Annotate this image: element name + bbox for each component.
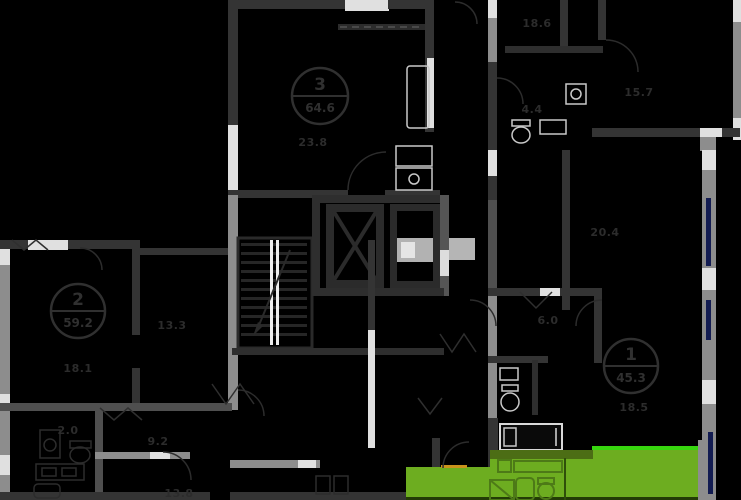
cabinet-icon	[316, 476, 348, 494]
room-area-label: 13.3	[157, 319, 186, 332]
bed-icon	[500, 424, 562, 450]
sink-icon	[36, 464, 84, 480]
apartment-total-area: 59.2	[63, 316, 93, 330]
highlighted-apartment[interactable]	[406, 446, 698, 500]
room-area-label: 18.1	[63, 362, 92, 375]
apartment-number: 3	[314, 75, 326, 95]
room-area-label: 18.5	[619, 401, 648, 414]
apartment-3-badge[interactable]: 364.6	[292, 68, 348, 124]
toilet-icon	[70, 441, 91, 463]
stairs-icon	[228, 195, 312, 410]
floor-plan-viewer: 23.818.615.74.420.46.018.513.318.12.09.2…	[0, 0, 741, 500]
room-area-label: 13.8	[164, 487, 193, 500]
selection-accent-line	[592, 446, 698, 450]
room-area-label: 2.0	[58, 424, 79, 437]
apartment-number: 1	[625, 345, 637, 365]
room-area-label: 18.6	[522, 17, 551, 30]
bathroom-fixtures-lower	[500, 368, 519, 411]
room-area-label: 9.2	[148, 435, 169, 448]
apartment-total-area: 64.6	[305, 101, 335, 115]
apartment-1-badge[interactable]: 145.3	[604, 339, 658, 393]
apartment-number: 2	[72, 290, 84, 310]
room-area-label: 4.4	[522, 103, 543, 116]
room-area-label: 20.4	[590, 226, 619, 239]
floor-plan-canvas: 23.818.615.74.420.46.018.513.318.12.09.2…	[0, 0, 741, 500]
room-area-label: 15.7	[624, 86, 653, 99]
apartment-total-area: 45.3	[616, 371, 646, 385]
walls-apartment-2	[0, 240, 232, 411]
room-area-label: 6.0	[538, 314, 559, 327]
apartment-2-badge[interactable]: 259.2	[51, 284, 105, 338]
entry-sill-accent	[441, 465, 467, 468]
room-area-label: 23.8	[298, 136, 327, 149]
